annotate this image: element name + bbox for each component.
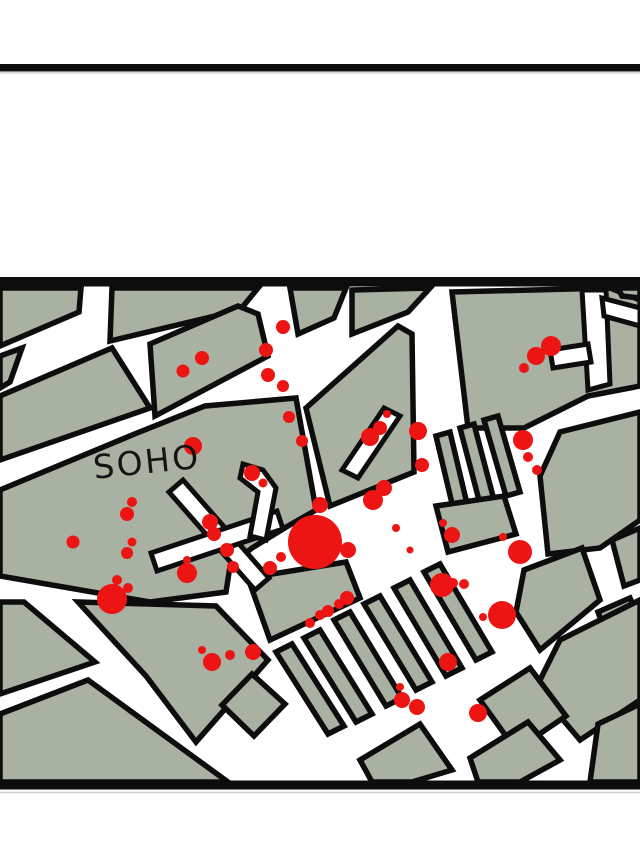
- death-dot: [439, 653, 457, 671]
- death-dot: [315, 610, 325, 620]
- death-dot: [195, 351, 209, 365]
- death-dot: [112, 575, 122, 585]
- page-top-rule-shadow: [0, 72, 640, 73]
- death-dot: [259, 479, 268, 488]
- death-dot: [227, 561, 239, 573]
- death-dot: [276, 320, 290, 334]
- death-dot: [394, 692, 410, 708]
- death-dot: [245, 644, 261, 660]
- death-dot: [305, 618, 315, 628]
- comic-page: SOHO: [0, 0, 640, 853]
- map-top-border: [0, 277, 640, 287]
- death-dot: [220, 543, 234, 557]
- death-dot: [448, 578, 458, 588]
- death-dot: [120, 507, 134, 521]
- death-dot: [128, 538, 137, 547]
- death-dot: [198, 646, 206, 654]
- death-dot: [203, 653, 221, 671]
- death-dot: [244, 465, 260, 481]
- map-bottom-border-shadow: [0, 792, 640, 793]
- death-dot: [177, 563, 197, 583]
- death-dot: [409, 422, 427, 440]
- soho-map-svg: SOHO: [0, 0, 640, 853]
- death-dot: [376, 480, 392, 496]
- death-dot: [383, 410, 391, 418]
- death-dot: [67, 536, 80, 549]
- page-top-rule: [0, 64, 640, 72]
- death-dot: [519, 363, 529, 373]
- city-block: [618, 288, 640, 298]
- death-dot: [288, 515, 342, 569]
- death-dot: [97, 584, 127, 614]
- death-dot: [444, 527, 460, 543]
- death-dot: [296, 435, 308, 447]
- death-dot: [340, 542, 356, 558]
- death-dot: [263, 561, 277, 575]
- death-dot: [532, 465, 542, 475]
- death-dot: [415, 458, 429, 472]
- death-dot: [439, 519, 447, 527]
- death-dot: [121, 547, 133, 559]
- death-dot: [334, 599, 344, 609]
- death-dot: [373, 421, 387, 435]
- death-dot: [499, 533, 507, 541]
- death-dot: [283, 411, 295, 423]
- death-dot: [469, 704, 487, 722]
- death-dot: [127, 497, 137, 507]
- death-dot: [527, 347, 545, 365]
- death-dot: [276, 552, 286, 562]
- map-bottom-border: [0, 781, 640, 790]
- death-dot: [459, 579, 469, 589]
- death-dot: [259, 343, 273, 357]
- death-dot: [407, 547, 414, 554]
- death-dot: [183, 556, 191, 564]
- death-dot: [177, 365, 190, 378]
- death-dot: [508, 540, 532, 564]
- death-dot: [225, 650, 235, 660]
- death-dot: [392, 524, 400, 532]
- death-dot: [479, 613, 487, 621]
- death-dot: [312, 497, 328, 513]
- death-dot: [277, 380, 289, 392]
- death-dot: [409, 699, 425, 715]
- death-dot: [207, 527, 221, 541]
- death-dot: [261, 368, 275, 382]
- death-dot: [396, 683, 404, 691]
- death-dot: [488, 601, 516, 629]
- death-dot: [523, 452, 533, 462]
- death-dot: [513, 430, 533, 450]
